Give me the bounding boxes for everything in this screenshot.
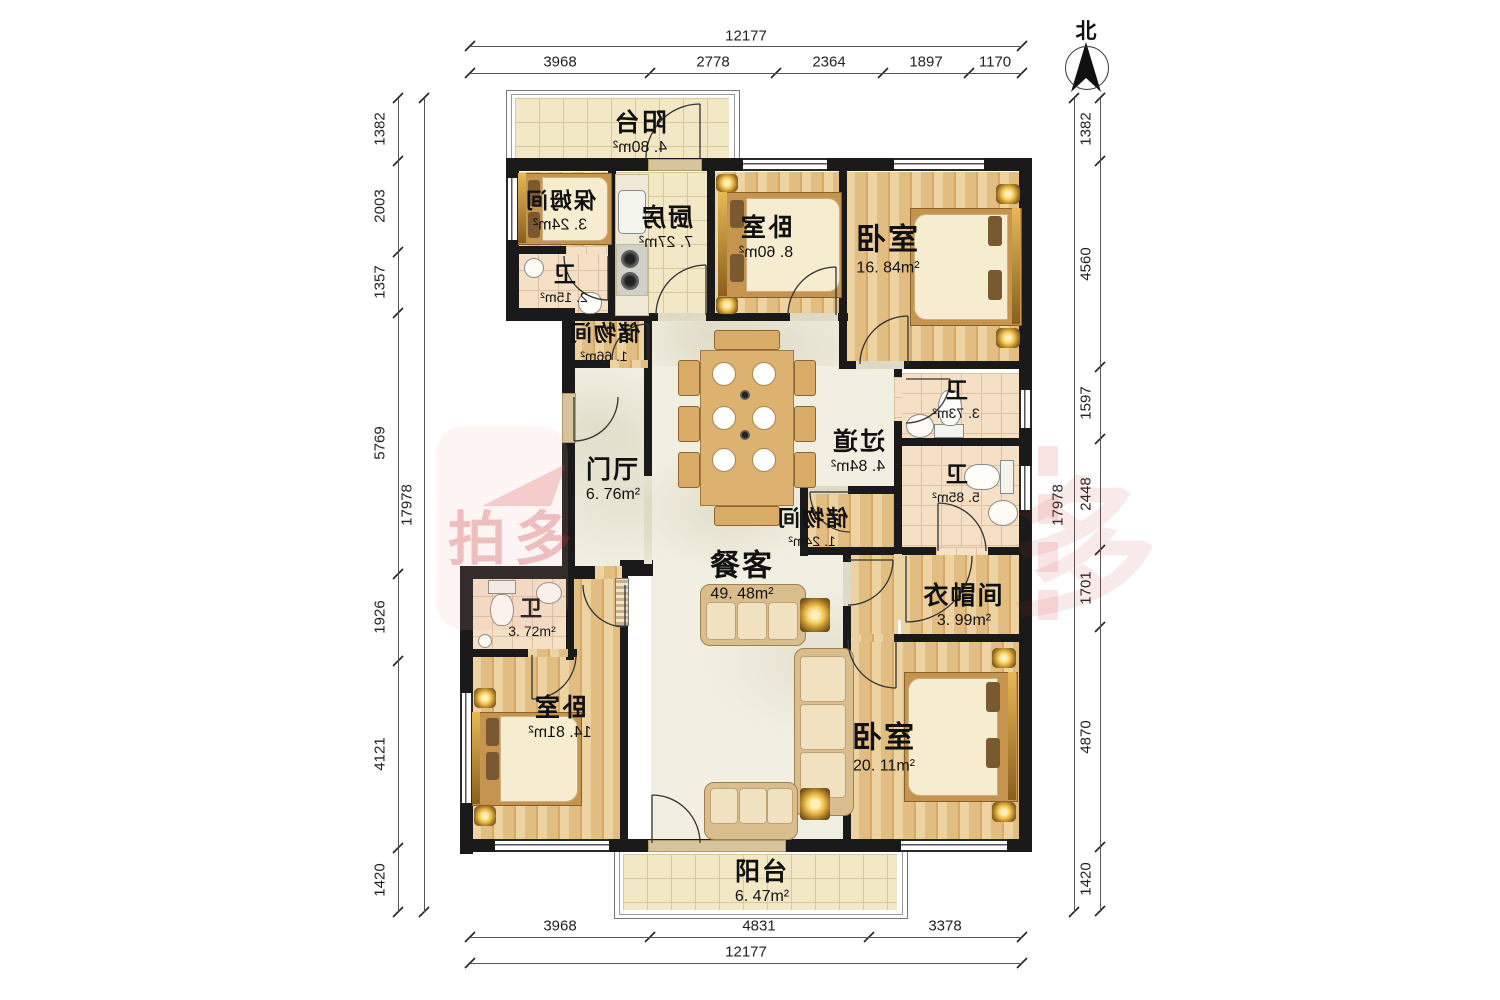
- dining-bench: [714, 506, 780, 526]
- entry-door-threshold: [562, 393, 576, 443]
- toilet-tank: [488, 580, 516, 594]
- door-threshold: [648, 159, 702, 171]
- dining-chair: [678, 360, 700, 396]
- door-opening: [790, 313, 838, 321]
- bed-pillow: [986, 738, 1000, 768]
- room-label-bedroom-1481: 卧室14. 81m²: [528, 694, 591, 742]
- room-label-balcony-top: 阳台4. 80m²: [613, 109, 667, 157]
- window: [901, 839, 1007, 852]
- plate: [712, 362, 736, 386]
- door-opening: [843, 562, 851, 606]
- compass-circle: [1065, 46, 1109, 90]
- north-label: 北: [1076, 15, 1097, 45]
- wall: [894, 438, 1032, 446]
- bed-pillow: [988, 270, 1002, 300]
- room-label-bedroom-2011: 卧室20. 11m²: [852, 721, 916, 775]
- window: [1019, 466, 1032, 510]
- window: [495, 839, 609, 852]
- room-label-maid-room: 保姆间3. 24m²: [524, 190, 596, 235]
- dim-line-top-segments: [470, 73, 1022, 74]
- bed-pillow: [486, 718, 499, 746]
- dim-top-seg: 2778: [696, 54, 729, 71]
- window: [743, 158, 827, 171]
- room-label-storage-166: 储物间1. 66m²: [568, 322, 640, 364]
- sofa-cushion: [706, 602, 736, 640]
- nightstand-lamp: [992, 802, 1016, 822]
- bed-mattress: [908, 678, 998, 796]
- dim-top-seg: 1170: [979, 54, 1011, 71]
- dim-right-seg: 1701: [1078, 571, 1095, 604]
- room-label-hall: 门厅6. 76m²: [586, 456, 640, 504]
- dim-left-seg: 5769: [372, 426, 389, 459]
- dim-bottom-seg: 4831: [742, 918, 775, 935]
- floor-drain: [478, 634, 492, 648]
- wall: [894, 634, 1032, 642]
- dim-right-seg: 1382: [1078, 112, 1095, 145]
- room-label-bath-373: 卫3. 73m²: [932, 379, 979, 421]
- dim-left-seg: 1926: [372, 600, 389, 633]
- sofa-cushion: [767, 788, 793, 824]
- dim-left-seg: 1357: [372, 265, 389, 298]
- stove-burner: [621, 272, 639, 290]
- door-opening: [566, 246, 608, 254]
- dim-bottom-seg: 3378: [928, 918, 961, 935]
- dim-bottom-total: 12177: [725, 944, 767, 961]
- dim-top-total: 12177: [725, 28, 767, 45]
- room-label-bath-585: 卫5. 85m²: [932, 463, 979, 505]
- plate: [752, 362, 776, 386]
- sink: [906, 414, 934, 438]
- wall: [573, 566, 597, 579]
- dim-left-seg: 1420: [372, 863, 389, 896]
- nightstand-lamp: [474, 688, 496, 708]
- dim-right-total: 17978: [1050, 484, 1067, 526]
- sofa-cushion: [739, 788, 767, 824]
- door-opening: [856, 361, 904, 369]
- door-leaf: [615, 578, 629, 626]
- door-opening: [528, 649, 568, 657]
- nightstand-lamp: [716, 296, 738, 314]
- room-label-bath-372: 卫3. 72m²: [508, 597, 555, 639]
- plate: [752, 406, 776, 430]
- room-label-bedroom-1684: 卧室16. 84m²: [856, 223, 920, 277]
- dim-right-seg: 4560: [1078, 247, 1095, 280]
- door-opening: [894, 554, 902, 620]
- door-opening: [894, 377, 902, 421]
- watermark-text-left: 拍多: [448, 492, 580, 576]
- dim-line-top-total: [470, 46, 1022, 47]
- stove-burner: [621, 250, 639, 268]
- toilet-tank: [1000, 460, 1014, 494]
- wall: [707, 171, 715, 321]
- bed-headboard: [472, 712, 480, 804]
- floor-plan-canvas: 北 阳台4. 80m² 保姆间3. 24m² 厨房7. 27m² 卧室8. 60…: [0, 0, 1500, 1000]
- room-label-bedroom-860: 卧室8. 60m²: [739, 214, 793, 262]
- nightstand-lamp: [474, 806, 496, 826]
- plate: [712, 406, 736, 430]
- sink: [988, 500, 1018, 526]
- dim-right-seg: 4870: [1078, 720, 1095, 753]
- sofa-cushion: [800, 656, 846, 702]
- end-table-lamp: [800, 598, 830, 632]
- dining-chair: [794, 360, 816, 396]
- dining-chair: [678, 406, 700, 442]
- nightstand-lamp: [716, 174, 738, 192]
- plate: [752, 448, 776, 472]
- balcony-door-threshold: [648, 840, 786, 852]
- bed-pillow: [986, 682, 1000, 712]
- room-label-living-dining: 餐客49. 48m²: [710, 549, 774, 603]
- dim-left-seg: 4121: [372, 737, 389, 770]
- toilet-tank: [934, 424, 964, 438]
- dim-line-bottom-total: [470, 963, 1022, 964]
- bed-headboard: [718, 192, 727, 296]
- dim-top-seg: 2364: [812, 54, 845, 71]
- wall: [460, 566, 575, 579]
- bed-pillow: [988, 216, 1002, 246]
- dim-right-seg: 1597: [1078, 386, 1095, 419]
- floor-entry-patch: [850, 554, 898, 638]
- room-label-corridor: 过道4. 84m²: [831, 428, 885, 476]
- bed-pillow: [486, 752, 499, 780]
- window: [894, 158, 984, 171]
- dim-line-bottom-segments: [470, 937, 1022, 938]
- room-label-closet: 衣帽间3. 99m²: [923, 582, 1004, 630]
- dining-chair: [678, 452, 700, 488]
- dim-left-total: 17978: [399, 484, 416, 526]
- door-opening: [852, 634, 894, 642]
- bed-headboard: [1008, 672, 1016, 800]
- dim-top-seg: 1897: [909, 54, 942, 71]
- nightstand-lamp: [996, 184, 1020, 204]
- dim-bottom-seg: 3968: [543, 918, 576, 935]
- dining-chair: [794, 452, 816, 488]
- watermark-swoosh: [482, 464, 566, 506]
- dim-top-seg: 3968: [543, 54, 576, 71]
- window: [1019, 390, 1032, 428]
- dim-line-right-segments: [1100, 98, 1101, 912]
- dim-line-left-total: [424, 98, 425, 912]
- room-label-bath-215: 卫2. 15m²: [540, 263, 587, 305]
- room-label-balcony-bottom: 阳台6. 47m²: [735, 858, 789, 906]
- table-decor: [740, 390, 750, 400]
- sofa-cushion: [768, 602, 798, 640]
- bed-headboard: [1012, 208, 1020, 324]
- room-label-kitchen: 厨房7. 27m²: [639, 204, 693, 252]
- sofa-cushion: [710, 788, 738, 824]
- table-decor: [740, 430, 750, 440]
- dim-right-seg: 1420: [1078, 862, 1095, 895]
- door-opening: [936, 547, 988, 555]
- dim-left-seg: 1382: [372, 112, 389, 145]
- sofa-cushion: [737, 602, 767, 640]
- sofa-cushion: [800, 704, 846, 750]
- room-label-storage-124: 储物间1. 24m²: [776, 507, 848, 549]
- plate: [712, 448, 736, 472]
- dining-chair: [794, 406, 816, 442]
- end-table-lamp: [800, 788, 830, 820]
- nightstand-lamp: [992, 648, 1016, 668]
- dining-bench: [714, 330, 780, 350]
- door-opening: [658, 313, 706, 321]
- nightstand-lamp: [996, 328, 1020, 348]
- dim-line-right-total: [1074, 98, 1075, 912]
- dim-right-seg: 2448: [1078, 477, 1095, 510]
- door-opening: [644, 476, 652, 564]
- wall: [566, 576, 574, 660]
- dim-left-seg: 2003: [372, 189, 389, 222]
